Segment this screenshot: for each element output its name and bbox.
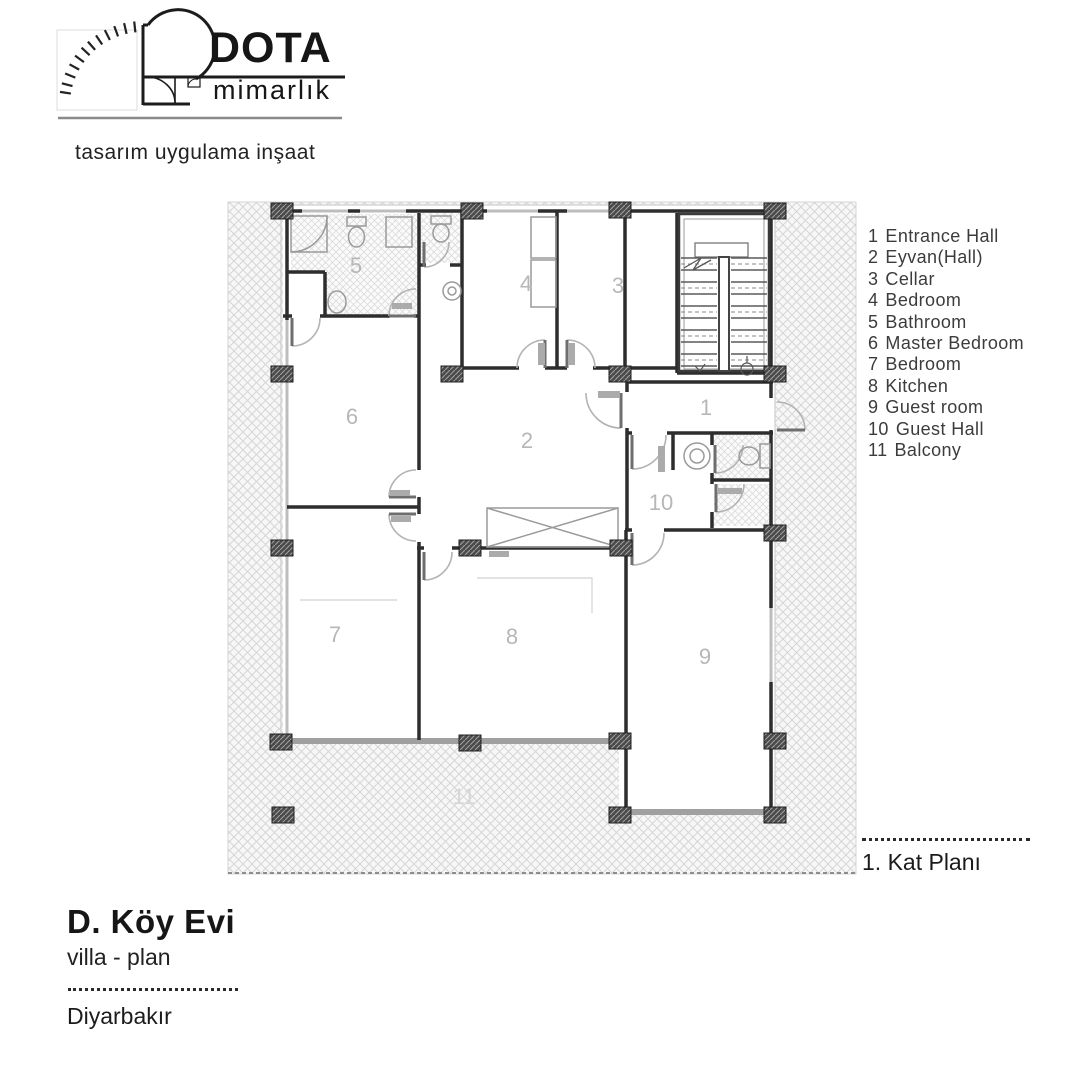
brand-subtitle: mimarlık xyxy=(213,75,331,105)
legend-item: 8Kitchen xyxy=(868,376,1024,397)
staircase xyxy=(679,214,769,375)
legend-item: 5Bathroom xyxy=(868,312,1024,333)
legend-item: 1Entrance Hall xyxy=(868,226,1024,247)
room-label-2: 2 xyxy=(521,428,533,453)
room-label-5: 5 xyxy=(350,253,362,278)
room-label-9: 9 xyxy=(699,644,711,669)
titleblock-divider xyxy=(68,988,238,991)
brand-logo: DOTA mimarlık tasarım uygulama inşaat xyxy=(57,10,345,164)
room-label-8: 8 xyxy=(506,624,518,649)
plan-label-divider xyxy=(862,838,1030,841)
brand-tagline: tasarım uygulama inşaat xyxy=(75,141,315,164)
project-subtitle: villa - plan xyxy=(67,944,171,971)
room-label-4: 4 xyxy=(520,271,532,296)
room-label-7: 7 xyxy=(329,622,341,647)
room-label-1: 1 xyxy=(700,395,712,420)
legend-item: 10Guest Hall xyxy=(868,419,1024,440)
room-label-6: 6 xyxy=(346,404,358,429)
legend-item: 6Master Bedroom xyxy=(868,333,1024,354)
room-label-11: 11 xyxy=(453,784,476,809)
project-location: Diyarbakır xyxy=(67,1003,172,1030)
legend-item: 4Bedroom xyxy=(868,290,1024,311)
logo-protractor-box xyxy=(57,30,137,110)
room-label-10: 10 xyxy=(649,490,673,515)
legend-item: 3Cellar xyxy=(868,269,1024,290)
room-legend: 1Entrance Hall 2Eyvan(Hall) 3Cellar 4Bed… xyxy=(868,226,1024,461)
plan-name: 1. Kat Planı xyxy=(862,849,981,876)
room-label-3: 3 xyxy=(612,273,624,298)
project-title: D. Köy Evi xyxy=(67,903,235,941)
legend-item: 11Balcony xyxy=(868,440,1024,461)
brand-name: DOTA xyxy=(209,24,332,72)
poster-canvas: DOTA mimarlık tasarım uygulama inşaat xyxy=(0,0,1080,1080)
legend-item: 7Bedroom xyxy=(868,354,1024,375)
legend-item: 2Eyvan(Hall) xyxy=(868,247,1024,268)
legend-item: 9Guest room xyxy=(868,397,1024,418)
